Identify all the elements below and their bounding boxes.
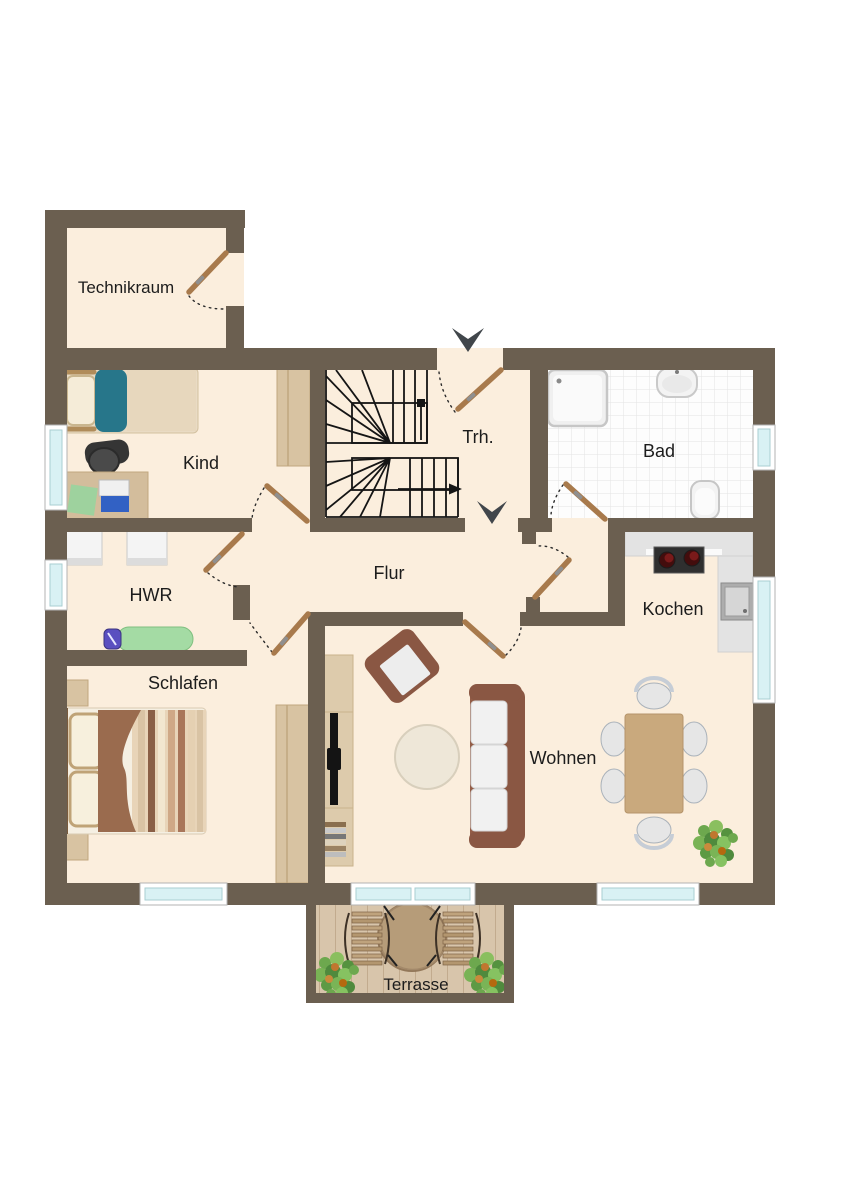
sofa-cushion xyxy=(471,745,507,788)
dining-chair xyxy=(681,722,707,756)
label-kind: Kind xyxy=(183,453,219,473)
laptop-screen xyxy=(99,480,129,496)
tv-sideboard xyxy=(322,655,353,866)
sofa-cushion xyxy=(471,701,507,744)
floor-plan-canvas: Technikraum Kind Trh. Bad HWR Flur Koche… xyxy=(0,0,848,1200)
wall xyxy=(753,703,775,883)
label-bad: Bad xyxy=(643,441,675,461)
wall xyxy=(45,210,245,228)
wall xyxy=(45,510,67,560)
dining-chair xyxy=(637,683,671,709)
laptop-keyboard xyxy=(101,496,129,512)
wall xyxy=(475,883,597,905)
wall xyxy=(45,210,67,348)
sofa-armrest xyxy=(469,831,522,848)
wall xyxy=(226,306,244,348)
wall xyxy=(310,365,325,532)
washing-machine xyxy=(62,528,102,565)
pillow xyxy=(70,772,102,826)
desk-pad xyxy=(67,484,98,515)
entry-threshold xyxy=(437,348,503,370)
window-schlafen xyxy=(140,883,227,905)
wall xyxy=(45,883,140,905)
wall xyxy=(526,597,540,614)
sofa xyxy=(469,684,525,848)
kind-wardrobe xyxy=(277,366,310,466)
double-bed xyxy=(60,708,206,834)
label-flur: Flur xyxy=(374,563,405,583)
wall xyxy=(520,612,625,626)
wall xyxy=(518,518,552,532)
blanket xyxy=(95,369,127,432)
window-wohnen xyxy=(597,883,699,905)
bed-stripes xyxy=(132,710,206,832)
kitchen-sink xyxy=(721,583,753,620)
dining-table xyxy=(625,714,683,813)
wall xyxy=(530,362,548,518)
stove xyxy=(654,547,704,573)
wall xyxy=(45,518,252,532)
ironing-board xyxy=(104,627,193,651)
dining-chair xyxy=(681,769,707,803)
terrace-wall xyxy=(504,905,514,995)
wall xyxy=(227,883,351,905)
dining-chair xyxy=(601,769,627,803)
label-trh: Trh. xyxy=(462,427,493,447)
shower xyxy=(548,370,607,426)
wall xyxy=(45,650,247,666)
window-kochen xyxy=(753,577,775,703)
wall xyxy=(45,348,437,370)
sofa-cushion xyxy=(471,789,507,831)
pillow xyxy=(70,714,102,768)
wall xyxy=(226,210,244,253)
label-schlafen: Schlafen xyxy=(148,673,218,693)
window-kind xyxy=(45,425,67,510)
terrace-wall xyxy=(306,905,316,995)
wall xyxy=(308,614,325,883)
wall xyxy=(699,883,775,905)
wall xyxy=(608,518,775,532)
pillow xyxy=(67,376,95,425)
wall xyxy=(325,518,465,532)
dryer xyxy=(127,528,167,565)
label-terrasse: Terrasse xyxy=(383,975,448,994)
label-wohnen: Wohnen xyxy=(530,748,597,768)
wall xyxy=(608,526,625,614)
window-hwr xyxy=(45,560,67,610)
wall xyxy=(310,612,463,626)
window-bad xyxy=(753,425,775,470)
kind-bed xyxy=(58,368,198,433)
label-hwr: HWR xyxy=(130,585,173,605)
dining-chair xyxy=(601,722,627,756)
wall xyxy=(753,370,775,425)
kind-desk xyxy=(62,472,148,520)
label-technikraum: Technikraum xyxy=(78,278,174,297)
sofa-armrest xyxy=(469,684,522,701)
schlafen-wardrobe xyxy=(276,705,309,883)
wall xyxy=(522,532,536,544)
bathroom-sink xyxy=(657,368,697,397)
label-kochen: Kochen xyxy=(642,599,703,619)
coffee-table xyxy=(395,725,459,789)
wall xyxy=(233,585,250,620)
terrace-wall xyxy=(306,993,514,1003)
wall xyxy=(45,370,67,425)
terrace-door-window xyxy=(351,883,475,905)
dining-chair xyxy=(637,817,671,843)
shower-drain xyxy=(557,379,562,384)
technikraum-door-threshold xyxy=(226,253,244,306)
